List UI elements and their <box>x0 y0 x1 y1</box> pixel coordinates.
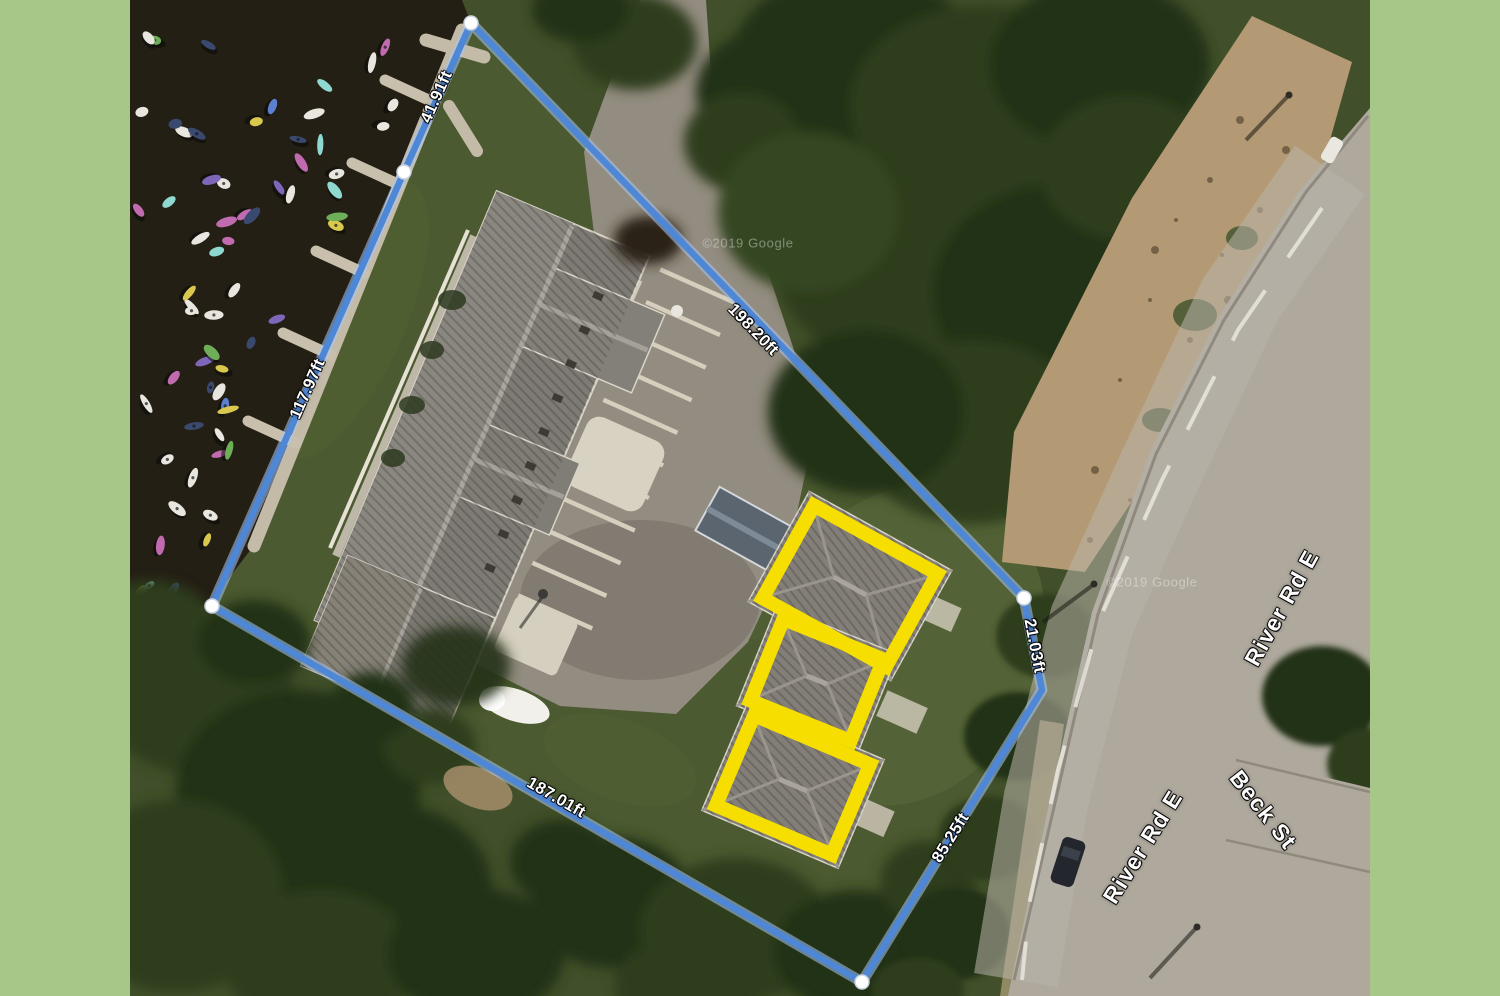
satellite-scene <box>0 0 1500 996</box>
frame-left <box>0 0 130 996</box>
parcel-vertex-handle[interactable] <box>1017 591 1031 605</box>
parcel-vertex-handle[interactable] <box>205 599 219 613</box>
parcel-vertex-handle[interactable] <box>464 16 478 30</box>
map-canvas[interactable]: 41.91ft117.97ft198.20ft187.01ft21.03ft85… <box>0 0 1500 996</box>
parcel-vertex-handle[interactable] <box>855 975 869 989</box>
frame-right <box>1370 0 1500 996</box>
parcel-vertex-handle[interactable] <box>397 165 411 179</box>
